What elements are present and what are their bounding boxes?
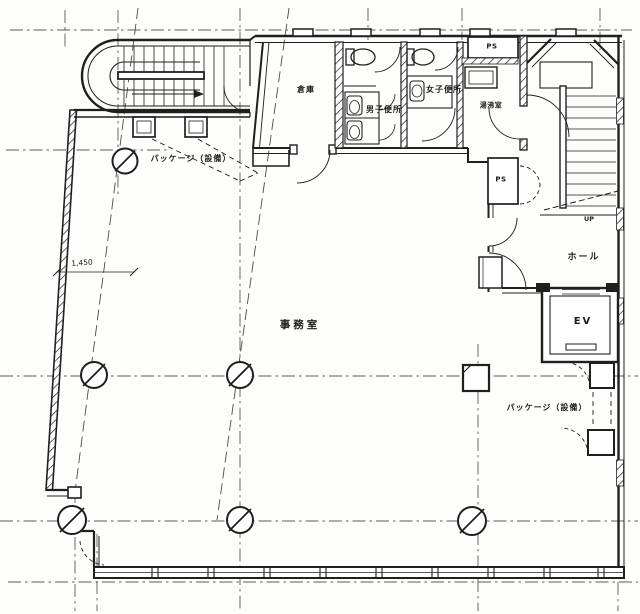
staircase-northwest: [74, 40, 250, 117]
room-label-mens-toilet: 男子便所: [366, 106, 402, 114]
room-label-hall: ホール: [567, 254, 600, 263]
package-units-northwest: [133, 117, 258, 181]
office-door-arc: [297, 150, 330, 183]
structural-columns: [58, 149, 489, 536]
stair-treads-east: [566, 96, 616, 206]
stair-up-label: UP: [584, 216, 594, 223]
floor-plan-drawing: [0, 0, 640, 614]
room-label-ps-top: PS: [486, 44, 497, 51]
room-label-elevator: EV: [574, 317, 593, 327]
hall-door-arc-1: [489, 218, 517, 246]
site-boundary-lines: [75, 8, 289, 520]
kitchenette-door-arc: [489, 108, 520, 139]
room-label-package-bottom: パッケージ（設備）: [507, 404, 588, 412]
room-label-kitchenette: 湯沸室: [480, 103, 503, 110]
room-label-womens-toilet: 女子便所: [426, 86, 462, 94]
floor-plan-sheet: パッケージ（設備） 倉庫 男子便所 女子便所 湯沸室 PS PS ホール UP …: [0, 0, 640, 614]
room-label-office: 事務室: [280, 320, 321, 331]
dimension-text: 1,450: [71, 259, 93, 268]
room-label-storage: 倉庫: [297, 86, 315, 94]
room-label-ps-mid: PS: [495, 177, 506, 184]
room-label-package-top: パッケージ（設備）: [151, 155, 232, 163]
